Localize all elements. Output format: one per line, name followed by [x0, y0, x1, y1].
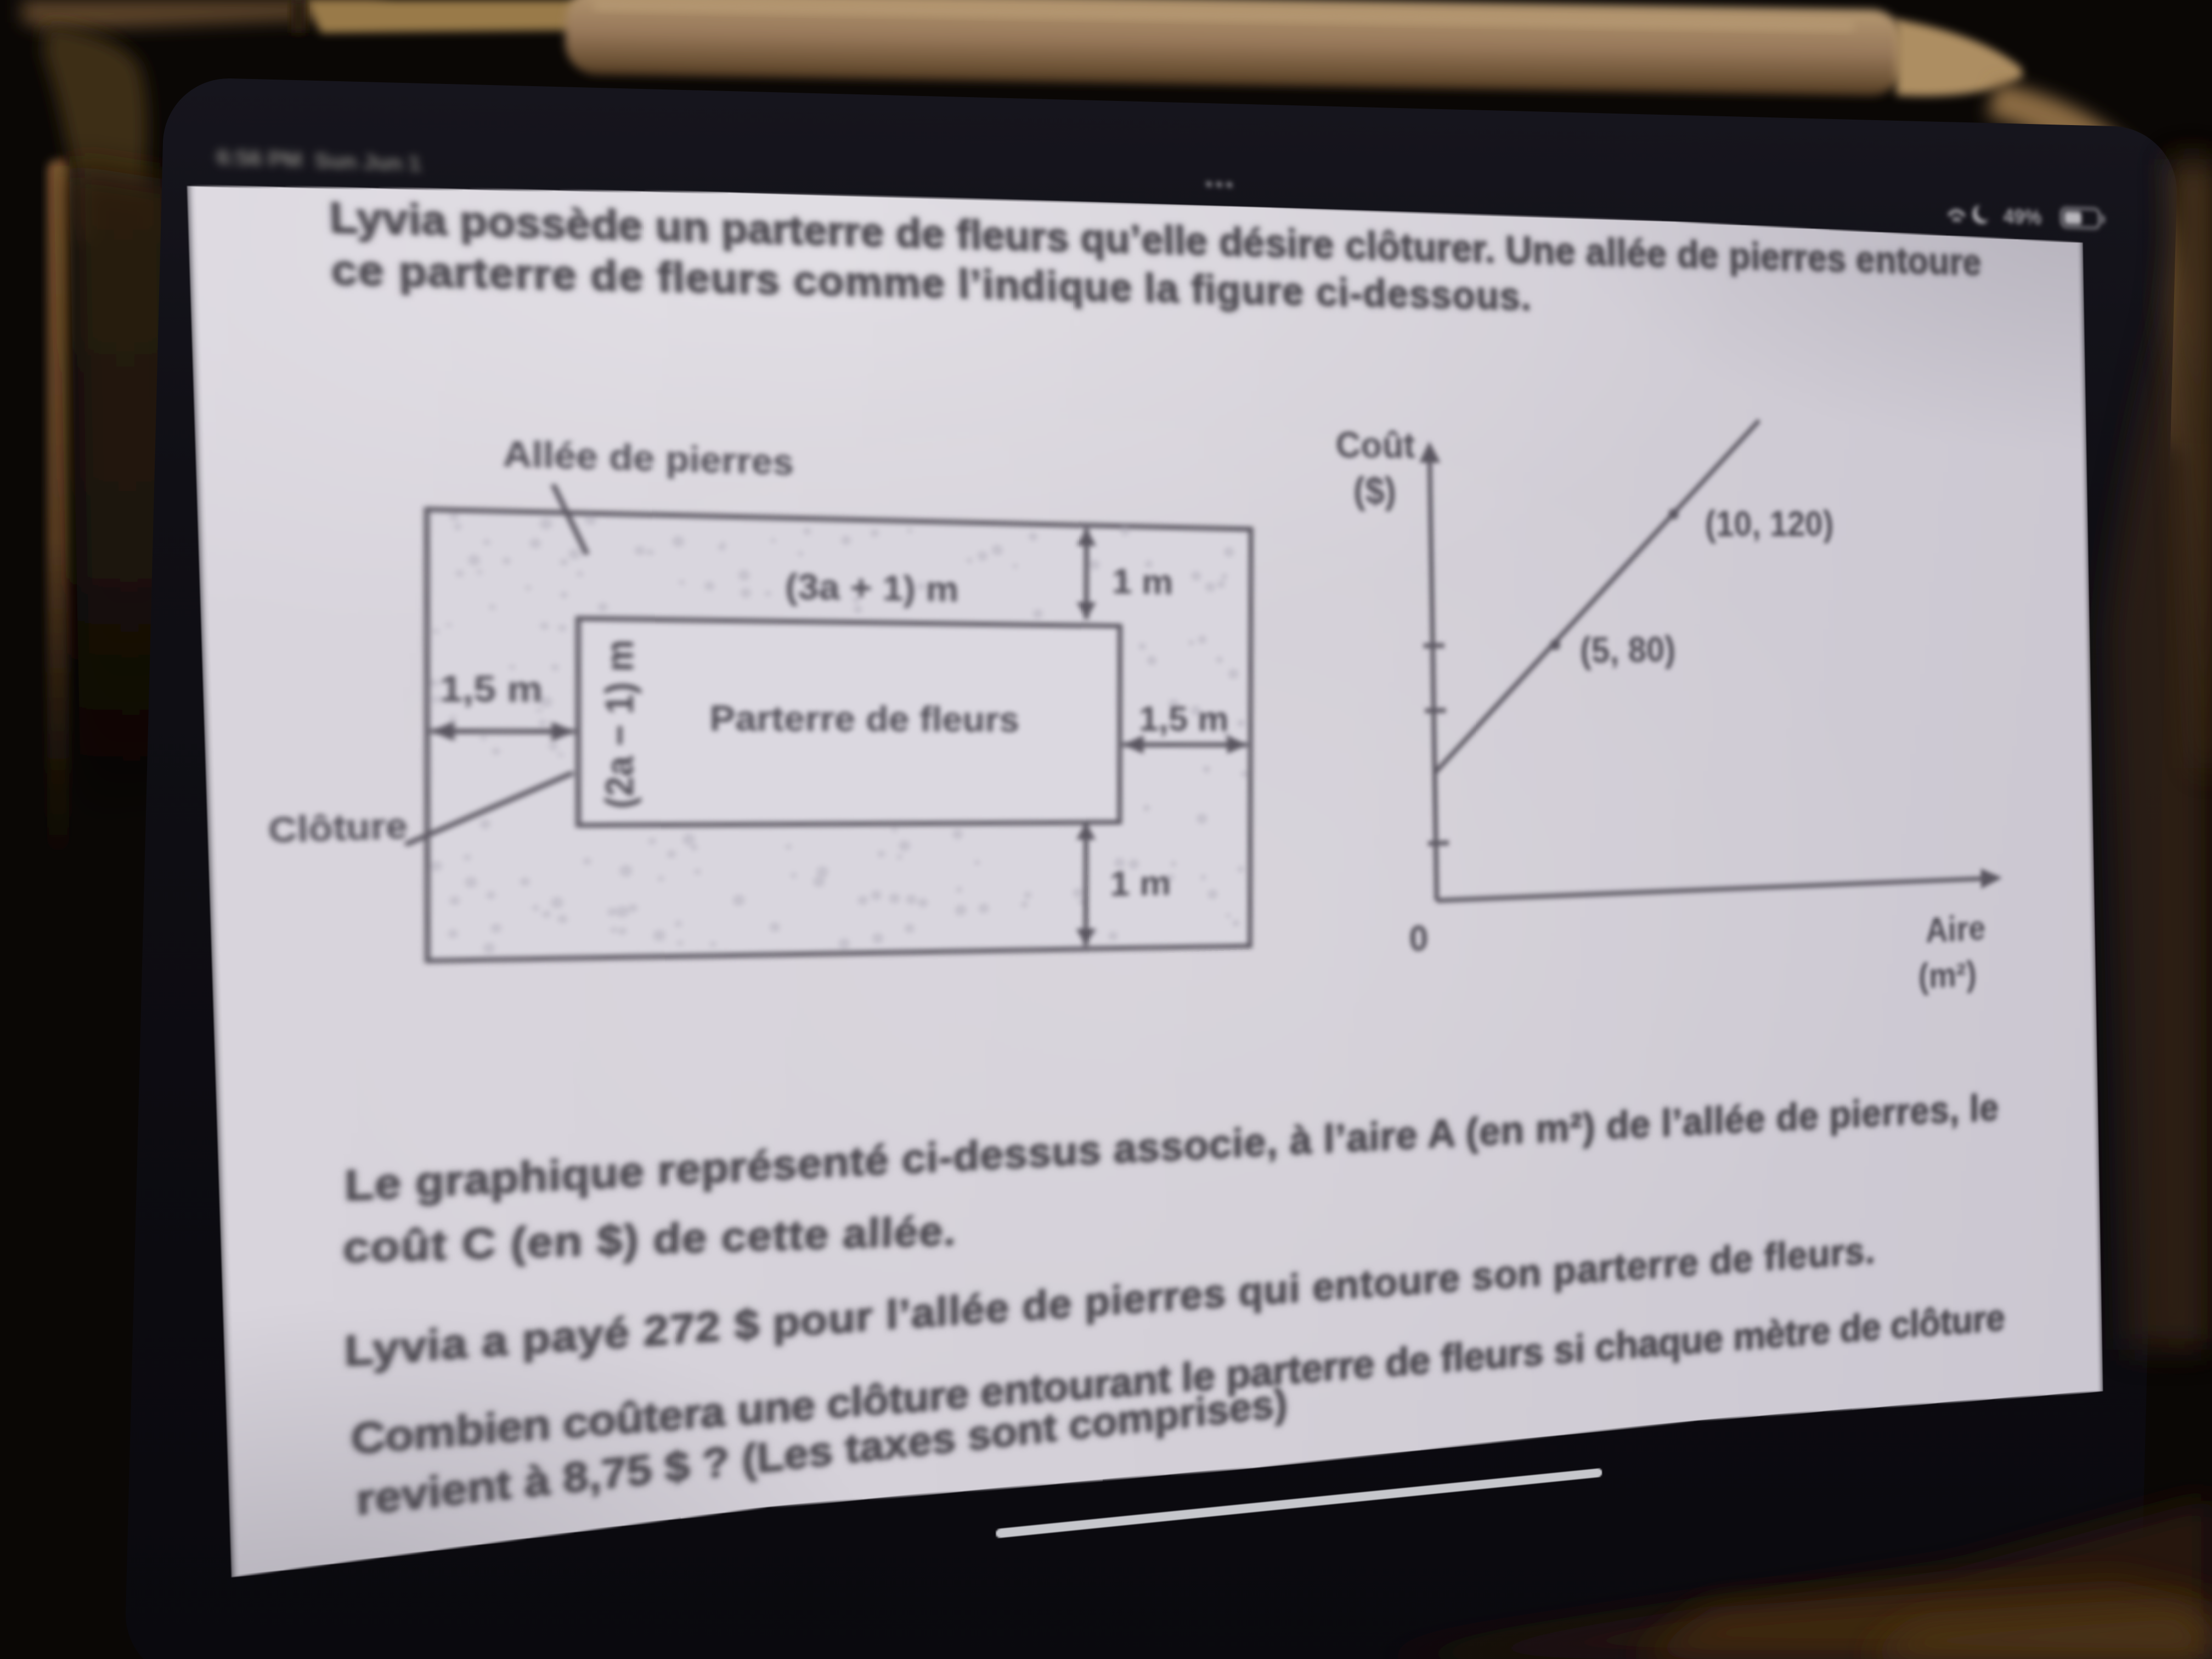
- svg-text:49%: 49%: [2003, 205, 2042, 229]
